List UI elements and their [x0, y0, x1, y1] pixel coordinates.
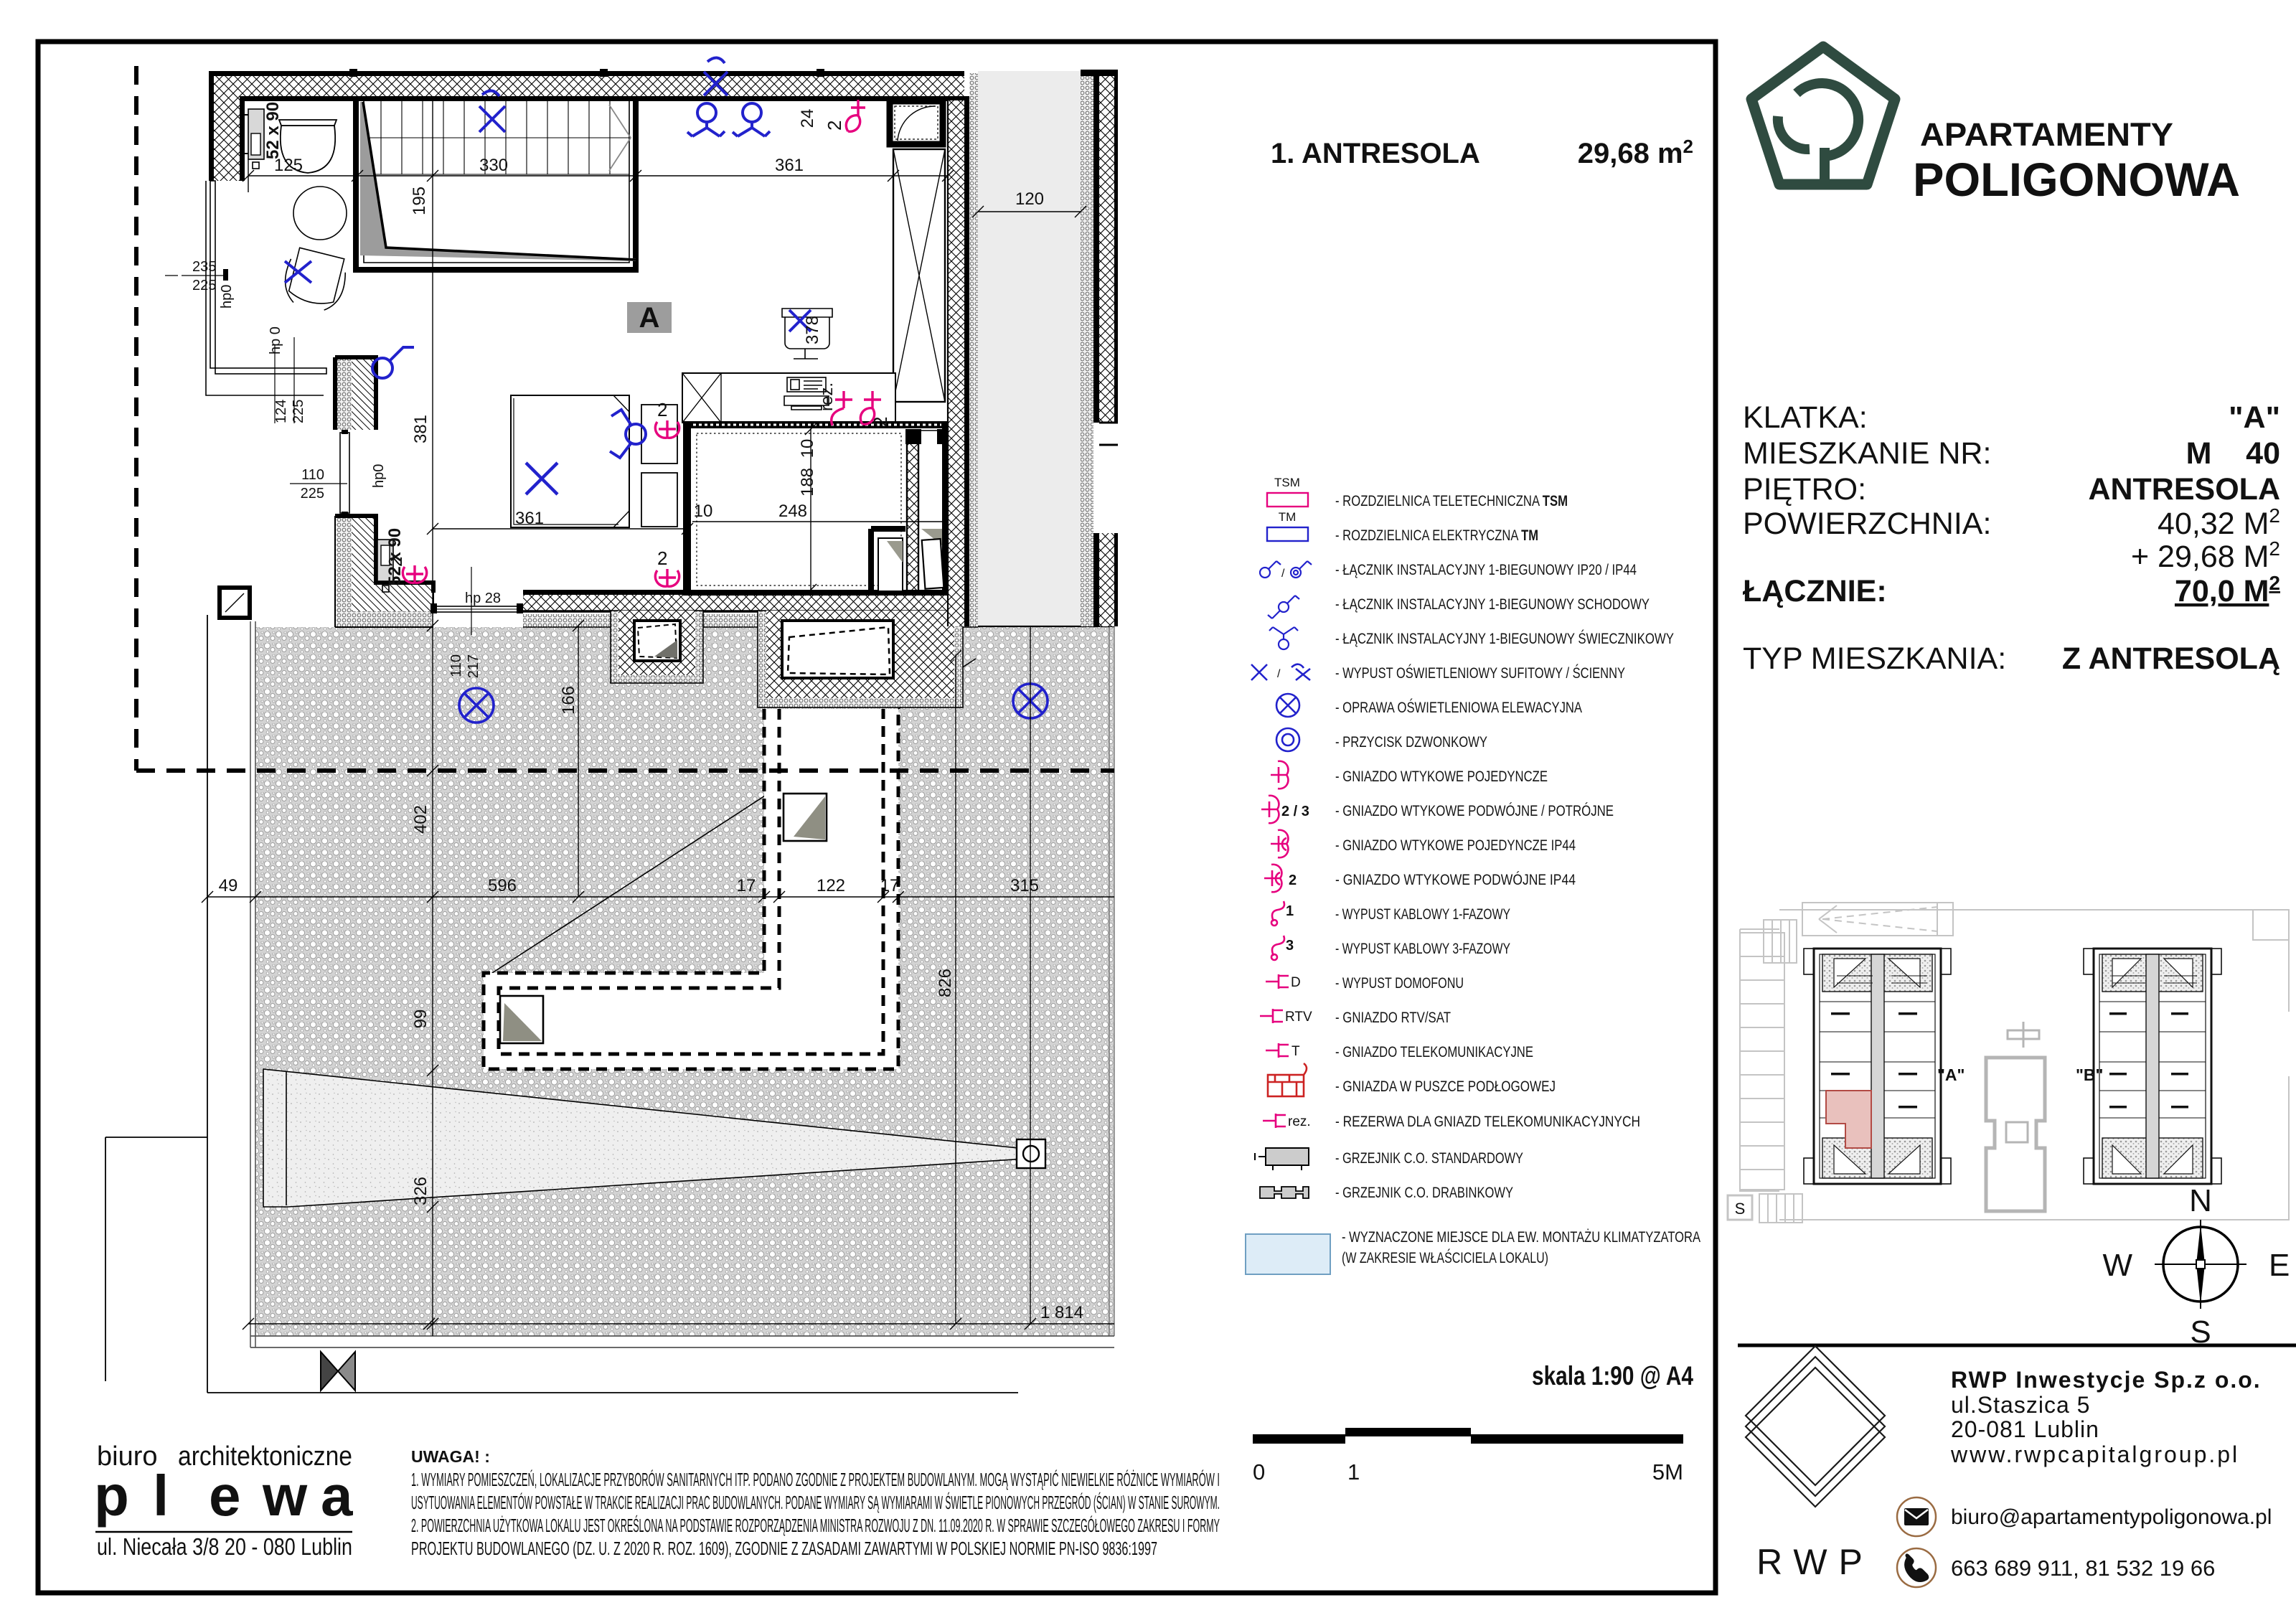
svg-text:hp 28: hp 28 — [465, 591, 501, 606]
svg-text:17: 17 — [880, 876, 900, 895]
svg-text:52 x 90: 52 x 90 — [263, 102, 283, 159]
svg-text:1: 1 — [1286, 903, 1294, 919]
svg-text:- GNIAZDO WTYKOWE PODWÓJNE IP4: - GNIAZDO WTYKOWE PODWÓJNE IP44 — [1335, 870, 1576, 888]
svg-text:361: 361 — [515, 509, 544, 528]
svg-text:/: / — [1281, 568, 1285, 580]
svg-text:3: 3 — [1286, 938, 1294, 954]
svg-text:- GNIAZDO RTV/SAT: - GNIAZDO RTV/SAT — [1335, 1009, 1451, 1026]
svg-text:- GRZEJNIK C.O. DRABINKOWY: - GRZEJNIK C.O. DRABINKOWY — [1335, 1184, 1513, 1201]
svg-text:2 / 3: 2 / 3 — [1281, 804, 1309, 819]
svg-text:402: 402 — [411, 805, 430, 834]
svg-text:E: E — [2269, 1248, 2290, 1283]
svg-text:- ŁĄCZNIK INSTALACYJNY 1-BIEGU: - ŁĄCZNIK INSTALACYJNY 1-BIEGUNOWY ŚWIEC… — [1335, 629, 1674, 647]
svg-text:N: N — [2189, 1183, 2212, 1218]
svg-text:40,32 M2: 40,32 M2 — [2158, 504, 2280, 541]
svg-text:225: 225 — [301, 486, 324, 502]
svg-text:PIĘTRO:: PIĘTRO: — [1743, 472, 1866, 507]
svg-text:20-081 Lublin: 20-081 Lublin — [1951, 1416, 2099, 1442]
svg-text:826: 826 — [936, 969, 955, 997]
svg-text:"B": "B" — [2076, 1065, 2103, 1084]
svg-text:TM: TM — [1279, 510, 1297, 524]
svg-text:Z ANTRESOLĄ: Z ANTRESOLĄ — [2062, 641, 2280, 676]
svg-text:110: 110 — [448, 654, 464, 677]
svg-text:MIESZKANIE NR:: MIESZKANIE NR: — [1743, 436, 1991, 471]
svg-text:ul. Niecała 3/8 20 - 080 Lubl: ul. Niecała 3/8 20 - 080 Lublin — [97, 1533, 352, 1560]
svg-text:2: 2 — [824, 121, 845, 131]
svg-text:1 814: 1 814 — [1040, 1303, 1083, 1322]
svg-text:"A": "A" — [2229, 400, 2280, 435]
svg-text:2: 2 — [657, 399, 667, 420]
svg-text:217: 217 — [466, 654, 481, 678]
svg-text:235: 235 — [192, 259, 216, 275]
svg-text:315: 315 — [1010, 876, 1039, 895]
svg-text:TYP MIESZKANIA:: TYP MIESZKANIA: — [1743, 641, 2006, 676]
svg-text:99: 99 — [411, 1010, 430, 1029]
svg-text:- ROZDZIELNICA ELEKTRYCZNA TM: - ROZDZIELNICA ELEKTRYCZNA TM — [1335, 527, 1538, 544]
svg-text:D: D — [1291, 975, 1301, 990]
svg-text:skala 1:90 @ A4: skala 1:90 @ A4 — [1532, 1361, 1693, 1391]
svg-text:381: 381 — [411, 415, 430, 443]
svg-text:124: 124 — [273, 400, 289, 423]
svg-text:361: 361 — [775, 156, 804, 175]
svg-text:248: 248 — [778, 502, 807, 521]
svg-text:- GNIAZDO TELEKOMUNIKACYJNE: - GNIAZDO TELEKOMUNIKACYJNE — [1335, 1043, 1533, 1060]
svg-text:49: 49 — [219, 876, 238, 895]
svg-text:2: 2 — [385, 557, 406, 567]
svg-text:+ 29,68 M2: + 29,68 M2 — [2131, 537, 2280, 574]
svg-text:70,0 M2: 70,0 M2 — [2175, 572, 2280, 608]
svg-text:225: 225 — [291, 400, 306, 423]
svg-text:10: 10 — [798, 439, 817, 458]
svg-text:- REZERWA DLA GNIAZD TELEKOMUN: - REZERWA DLA GNIAZD TELEKOMUNIKACYJNYCH — [1335, 1113, 1640, 1130]
svg-text:- WYPUST DOMOFONU: - WYPUST DOMOFONU — [1335, 974, 1464, 992]
svg-text:UWAGA! :: UWAGA! : — [411, 1447, 490, 1466]
svg-text:- WYPUST KABLOWY 3-FAZOWY: - WYPUST KABLOWY 3-FAZOWY — [1335, 940, 1510, 957]
svg-text:M 40: M 40 — [2186, 436, 2280, 471]
svg-text:S: S — [1735, 1200, 1746, 1218]
svg-text:- GRZEJNIK C.O. STANDARDOWY: - GRZEJNIK C.O. STANDARDOWY — [1335, 1149, 1523, 1167]
svg-text:ul.Staszica 5: ul.Staszica 5 — [1951, 1392, 2090, 1418]
svg-text:biuro@apartamentypoligonowa.pl: biuro@apartamentypoligonowa.pl — [1951, 1505, 2272, 1529]
svg-text:166: 166 — [559, 686, 578, 715]
svg-text:5M: 5M — [1652, 1459, 1683, 1485]
svg-text:hp0: hp0 — [371, 464, 387, 488]
svg-text:rez.: rez. — [817, 382, 837, 411]
svg-text:195: 195 — [410, 187, 429, 215]
svg-text:rez.: rez. — [1288, 1114, 1311, 1129]
svg-text:TSM: TSM — [1274, 476, 1300, 489]
svg-text:RTV: RTV — [1285, 1010, 1312, 1025]
svg-text:110: 110 — [301, 467, 324, 483]
svg-text:A: A — [639, 302, 660, 334]
svg-text:PROJEKTU BUDOWLANEGO (DZ. U. Z: PROJEKTU BUDOWLANEGO (DZ. U. Z 2020 R. R… — [411, 1538, 1157, 1559]
svg-text:ANTRESOLA: ANTRESOLA — [2088, 472, 2280, 507]
svg-text:1. WYMIARY POMIESZCZEŃ, LOK: 1. WYMIARY POMIESZCZEŃ, LOKALIZACJE PRZY… — [411, 1469, 1220, 1490]
svg-text:(W ZAKRESIE WŁAŚCICIELA LOKALU: (W ZAKRESIE WŁAŚCICIELA LOKALU) — [1342, 1248, 1548, 1266]
svg-text:RWP Inwestycje Sp.z o.o.: RWP Inwestycje Sp.z o.o. — [1951, 1367, 2262, 1393]
svg-text:29,68 m2: 29,68 m2 — [1578, 136, 1693, 169]
svg-text:2: 2 — [657, 547, 667, 569]
svg-text:RWP: RWP — [1756, 1542, 1874, 1582]
svg-text:- GNIAZDO WTYKOWE PODWÓJNE / P: - GNIAZDO WTYKOWE PODWÓJNE / POTRÓJNE — [1335, 801, 1614, 819]
svg-text:0: 0 — [1253, 1459, 1265, 1485]
svg-text:/: / — [1277, 668, 1281, 680]
svg-text:- ŁĄCZNIK INSTALACYJNY 1-BIEGU: - ŁĄCZNIK INSTALACYJNY 1-BIEGUNOWY IP20 … — [1335, 561, 1637, 578]
svg-text:378: 378 — [803, 316, 822, 344]
svg-text:KLATKA:: KLATKA: — [1743, 400, 1868, 435]
svg-text:2: 2 — [870, 417, 891, 427]
svg-text:- WYPUST KABLOWY 1-FAZOWY: - WYPUST KABLOWY 1-FAZOWY — [1335, 905, 1510, 923]
svg-text:T: T — [1291, 1044, 1300, 1059]
svg-text:- OPRAWA OŚWIETLENIOWA ELEWACY: - OPRAWA OŚWIETLENIOWA ELEWACYJNA — [1335, 698, 1583, 716]
svg-text:330: 330 — [479, 156, 508, 175]
svg-text:17: 17 — [737, 876, 756, 895]
svg-text:- WYPUST OŚWIETLENIOWY SUFITOW: - WYPUST OŚWIETLENIOWY SUFITOWY / ŚCIENN… — [1335, 664, 1625, 682]
svg-text:hp0: hp0 — [219, 285, 235, 309]
svg-text:2. POWIERZCHNIA UŻYTKOWA LO: 2. POWIERZCHNIA UŻYTKOWA LOKALU JEST OKR… — [411, 1515, 1220, 1536]
svg-text:- ŁĄCZNIK INSTALACYJNY 1-BIEGU: - ŁĄCZNIK INSTALACYJNY 1-BIEGUNOWY SCHOD… — [1335, 596, 1650, 613]
svg-text:1. ANTRESOLA: 1. ANTRESOLA — [1271, 138, 1480, 169]
svg-text:122: 122 — [817, 876, 845, 895]
svg-text:- WYZNACZONE MIEJSCE DLA EW. M: - WYZNACZONE MIEJSCE DLA EW. MONTAŻU KLI… — [1342, 1228, 1701, 1246]
svg-text:- GNIAZDA W PUSZCE PODŁOGOWEJ: - GNIAZDA W PUSZCE PODŁOGOWEJ — [1335, 1078, 1556, 1095]
svg-text:POLIGONOWA: POLIGONOWA — [1913, 153, 2240, 206]
svg-text:- ROZDZIELNICA TELETECHNICZNA: - ROZDZIELNICA TELETECHNICZNA TSM — [1335, 492, 1568, 509]
svg-text:326: 326 — [411, 1177, 430, 1205]
svg-text:663 689 911, 81 532 19 66: 663 689 911, 81 532 19 66 — [1951, 1556, 2215, 1581]
svg-text:www.rwpcapitalgroup.pl: www.rwpcapitalgroup.pl — [1950, 1441, 2239, 1467]
svg-text:- GNIAZDO WTYKOWE POJEDYNCZE I: - GNIAZDO WTYKOWE POJEDYNCZE IP44 — [1335, 837, 1576, 854]
svg-text:- GNIAZDO WTYKOWE POJEDYNCZE: - GNIAZDO WTYKOWE POJEDYNCZE — [1335, 768, 1548, 785]
svg-text:W: W — [2102, 1248, 2132, 1283]
svg-text:"A": "A" — [1937, 1065, 1965, 1084]
svg-text:125: 125 — [274, 156, 303, 175]
svg-text:24: 24 — [798, 109, 817, 128]
svg-text:POWIERZCHNIA:: POWIERZCHNIA: — [1743, 507, 1991, 541]
svg-text:188: 188 — [798, 468, 817, 497]
svg-text:- PRZYCISK DZWONKOWY: - PRZYCISK DZWONKOWY — [1335, 733, 1487, 751]
svg-text:120: 120 — [1015, 189, 1044, 209]
svg-text:APARTAMENTY: APARTAMENTY — [1920, 116, 2173, 153]
svg-text:2: 2 — [1289, 872, 1297, 888]
svg-text:hp 0: hp 0 — [268, 326, 283, 354]
svg-text:10: 10 — [694, 502, 713, 521]
svg-text:USYTUOWANIA ELEMENTÓW POWSTAŁE: USYTUOWANIA ELEMENTÓW POWSTAŁE W TRAKCIE… — [411, 1492, 1220, 1513]
svg-text:1: 1 — [1347, 1459, 1360, 1485]
svg-text:225: 225 — [192, 278, 216, 293]
svg-text:ŁĄCZNIE:: ŁĄCZNIE: — [1743, 574, 1887, 608]
svg-text:596: 596 — [488, 876, 517, 895]
